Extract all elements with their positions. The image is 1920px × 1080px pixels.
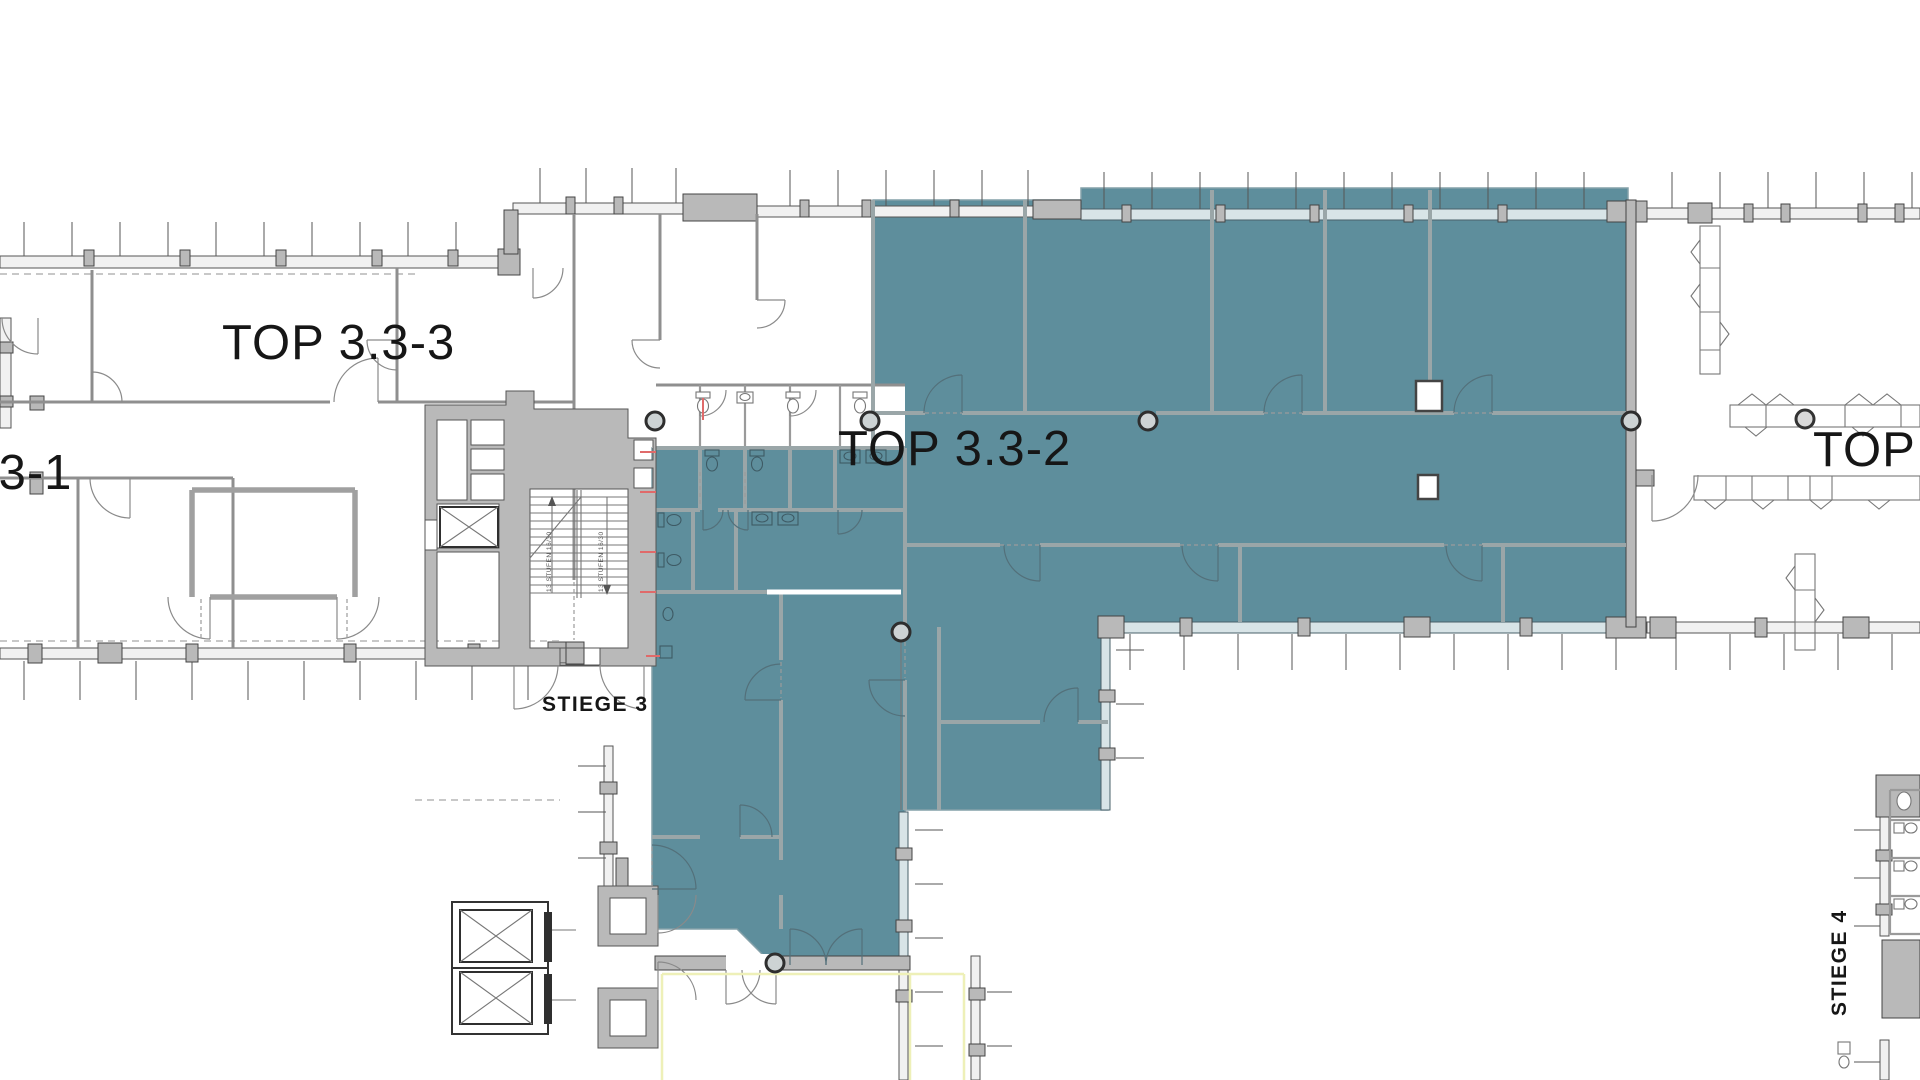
elevator-door-bar xyxy=(544,912,552,962)
toilet-icon xyxy=(1894,899,1917,909)
toilet-icon xyxy=(1894,823,1917,833)
toilet-icon xyxy=(1838,1042,1850,1068)
stair-note-left: 13 STUFEN 16/30 xyxy=(546,531,553,592)
unit-label-top-3-3-2: TOP 3.3-2 xyxy=(838,422,1071,476)
floor-plan-canvas: 13 STUFEN 16/30 13 STUFEN 16/30 xyxy=(0,0,1920,1080)
unit-label-top-3-3-1-partial: .3-1 xyxy=(0,446,72,500)
bottom-elevators xyxy=(452,902,576,1034)
elevator-shaft-icon xyxy=(460,910,532,962)
toilet-icon xyxy=(1894,861,1917,871)
entry-vestibules xyxy=(598,886,658,1048)
stair-treads xyxy=(530,490,628,598)
elevator-shaft-icon xyxy=(460,972,532,1024)
stairwell-label-stiege-4: STIEGE 4 xyxy=(1828,909,1851,1016)
elevator-door-bar xyxy=(544,974,552,1024)
toilet-icon xyxy=(853,392,867,413)
stairwell-label-stiege-3: STIEGE 3 xyxy=(542,693,649,716)
stair-note-right: 13 STUFEN 16/30 xyxy=(598,531,605,592)
sink-icon xyxy=(737,392,753,403)
toilet-icon xyxy=(786,392,800,413)
unit-accent-yellow xyxy=(662,974,964,1080)
unit-label-top-4-partial: TOP 4 xyxy=(1813,423,1920,477)
elevator-shaft-icon xyxy=(440,507,498,547)
stair-core-stiege-3: 13 STUFEN 16/30 13 STUFEN 16/30 xyxy=(425,391,656,666)
unit-label-top-3-3-3: TOP 3.3-3 xyxy=(222,316,455,370)
